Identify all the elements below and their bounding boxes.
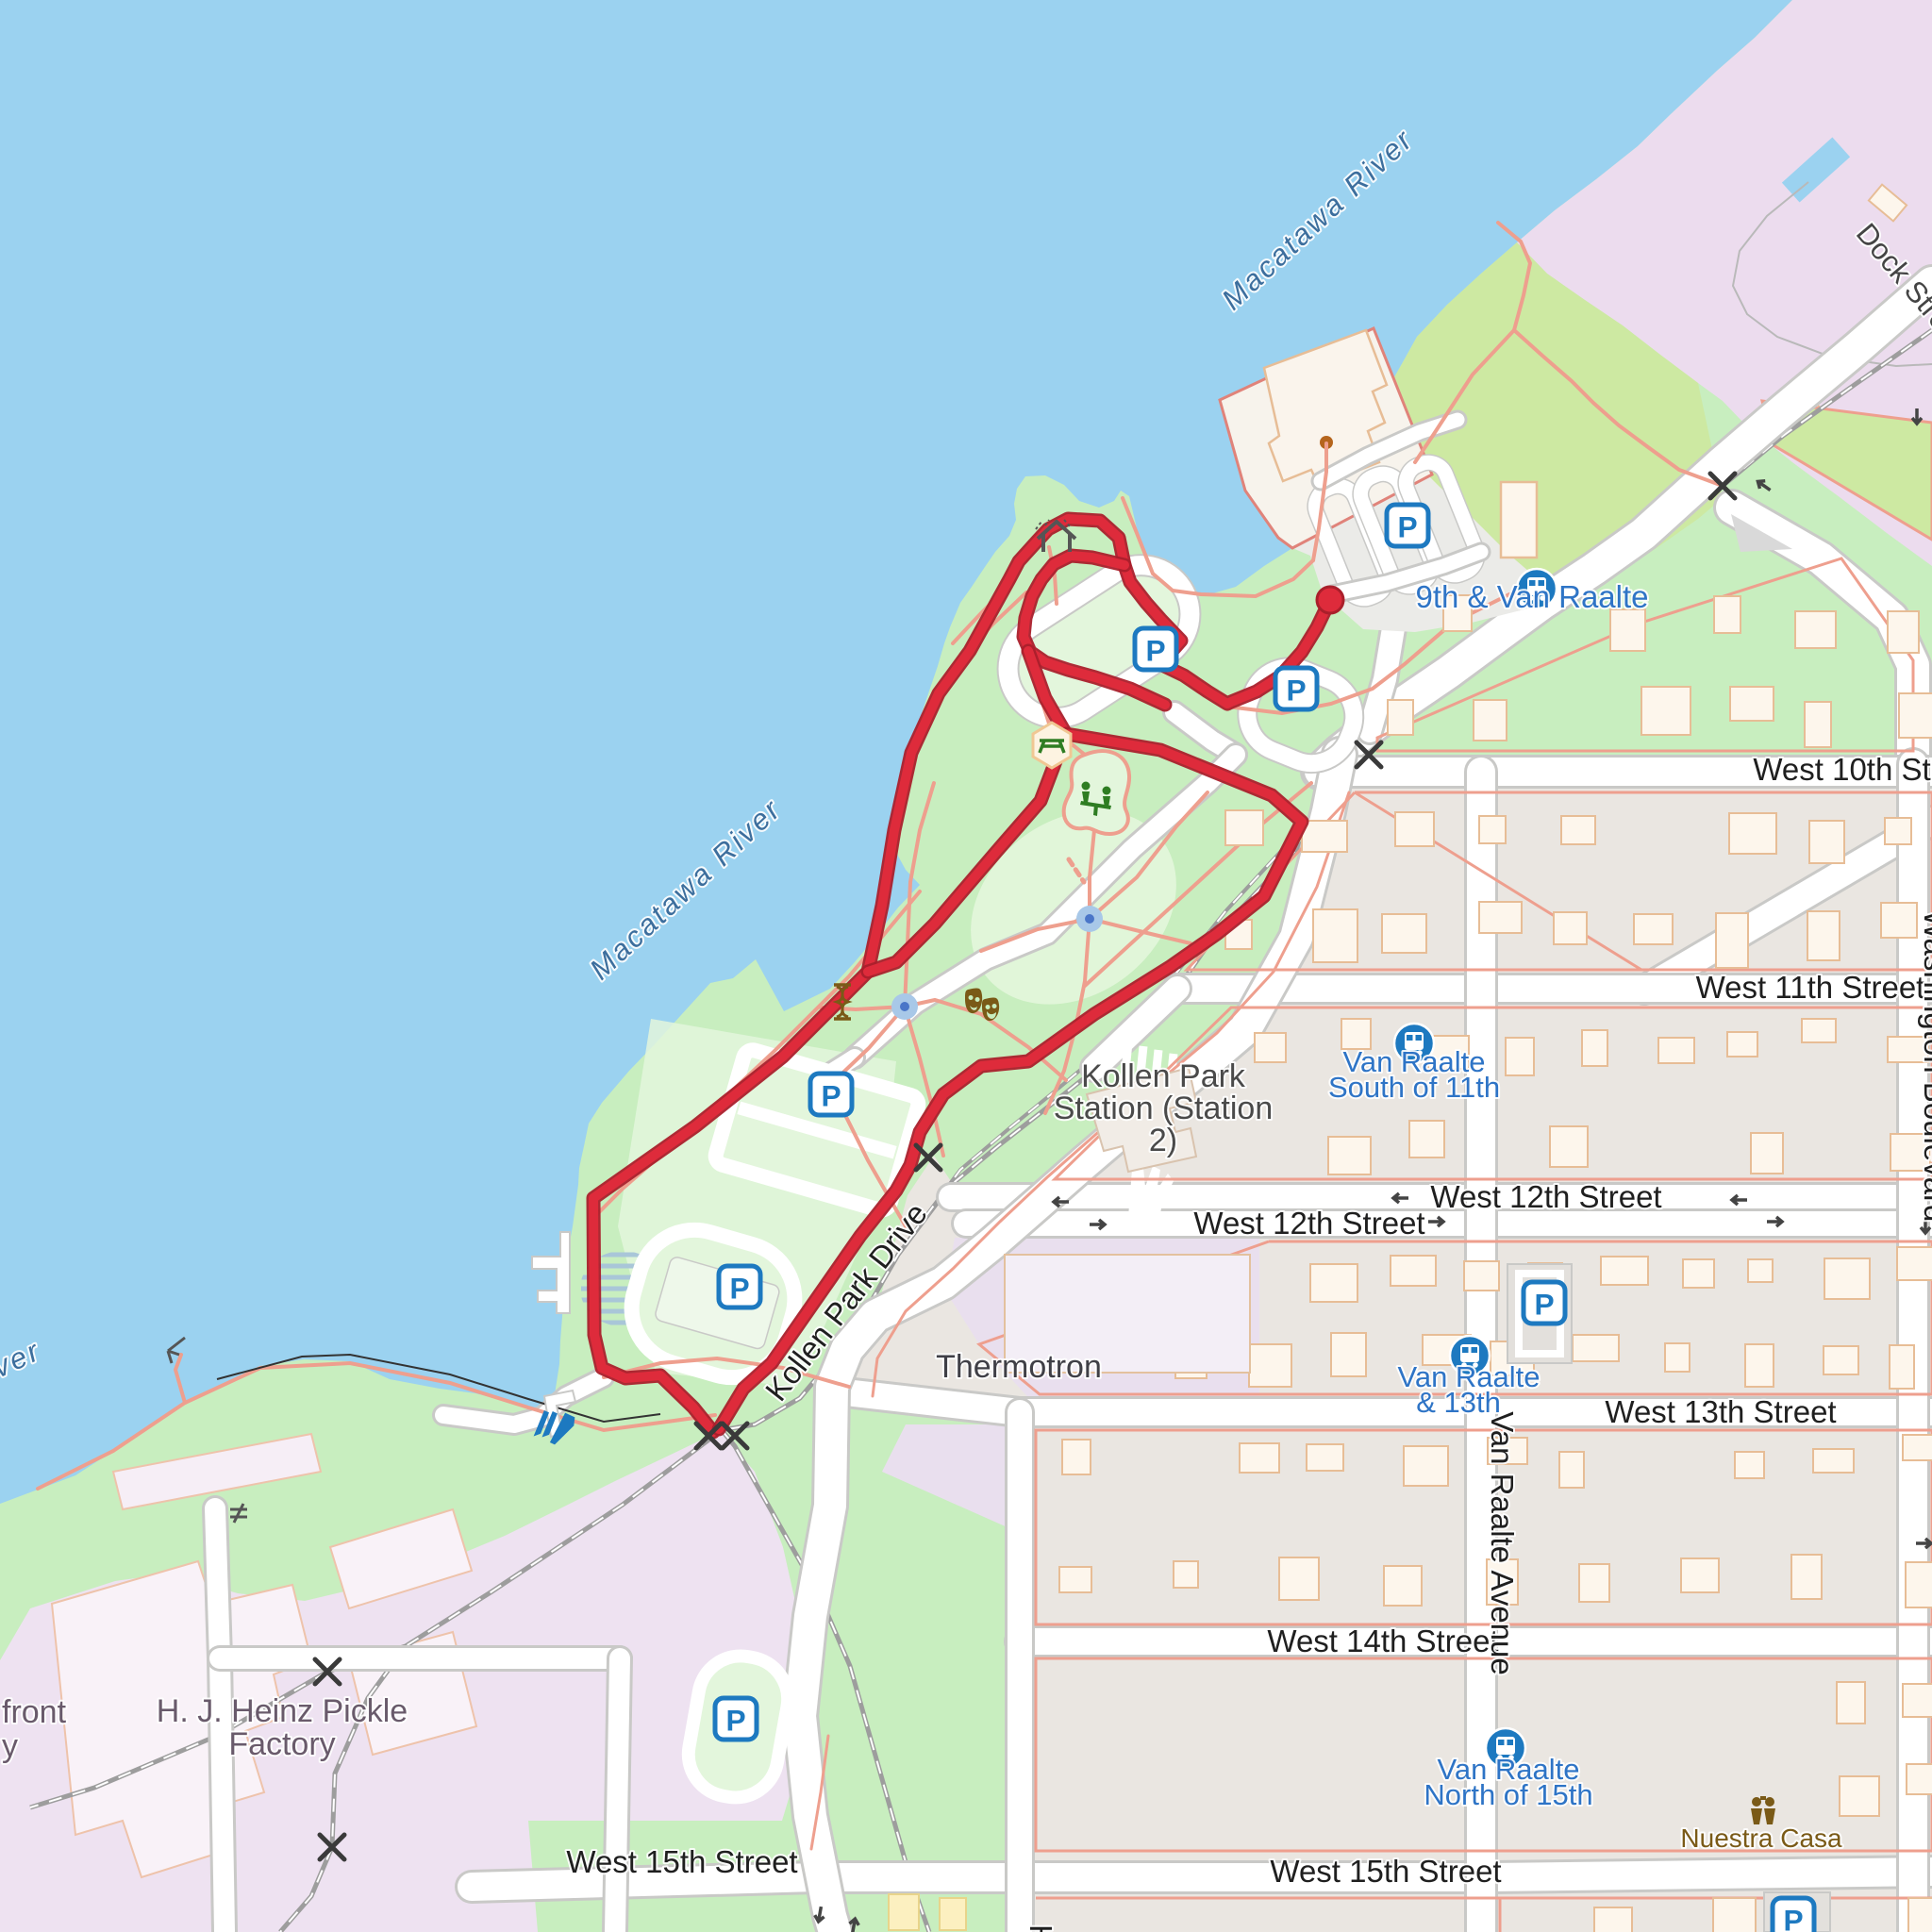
svg-text:P: P [821, 1078, 841, 1112]
svg-text:Kollen Park: Kollen Park [1081, 1058, 1246, 1094]
svg-text:West 15th Street: West 15th Street [1270, 1854, 1501, 1889]
svg-text:P: P [1286, 673, 1306, 707]
svg-text:y: y [2, 1728, 18, 1764]
svg-text:H. J. Heinz Pickle: H. J. Heinz Pickle [157, 1693, 408, 1729]
svg-text:Harrison Aven: Harrison Aven [1024, 1924, 1058, 1932]
svg-text:West 11th Street: West 11th Street [1696, 970, 1925, 1005]
svg-text:P: P [729, 1271, 749, 1305]
svg-text:West 12th Street: West 12th Street [1430, 1179, 1661, 1214]
svg-text:West 14th Street: West 14th Street [1267, 1624, 1498, 1658]
svg-text:P: P [1397, 509, 1417, 543]
svg-text:North of 15th: North of 15th [1424, 1778, 1592, 1811]
svg-text:& 13th: & 13th [1416, 1386, 1501, 1419]
svg-text:West 13th Street: West 13th Street [1605, 1394, 1836, 1429]
svg-text:West 15th Street: West 15th Street [566, 1844, 797, 1879]
svg-text:2): 2) [1149, 1123, 1177, 1158]
svg-text:Washington Boulevard: Washington Boulevard [1918, 910, 1932, 1223]
svg-text:Van Raalte Avenue: Van Raalte Avenue [1485, 1411, 1520, 1675]
svg-text:P: P [1145, 633, 1165, 667]
svg-text:P: P [1783, 1903, 1803, 1932]
svg-text:9th & Van Raalte: 9th & Van Raalte [1415, 579, 1648, 614]
svg-text:Nuestra Casa: Nuestra Casa [1680, 1824, 1842, 1853]
svg-text:West 10th Str: West 10th Str [1753, 752, 1932, 787]
svg-text:Factory: Factory [228, 1726, 335, 1762]
svg-text:Thermotron: Thermotron [936, 1349, 1102, 1385]
svg-text:South of 11th: South of 11th [1328, 1071, 1500, 1104]
svg-text:West 12th Street: West 12th Street [1193, 1206, 1424, 1241]
svg-text:P: P [725, 1703, 745, 1737]
svg-text:P: P [1534, 1287, 1554, 1321]
svg-text:Station (Station: Station (Station [1054, 1091, 1273, 1126]
svg-text:front: front [2, 1694, 67, 1730]
